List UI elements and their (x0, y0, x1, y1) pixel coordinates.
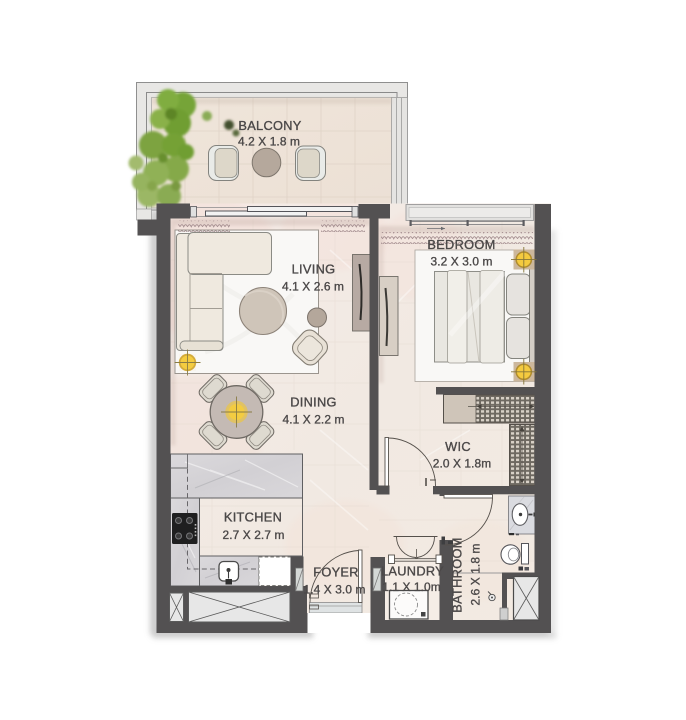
svg-text:1.1 X 1.0m: 1.1 X 1.0m (382, 580, 441, 594)
svg-text:1.4 X 3.0 m: 1.4 X 3.0 m (304, 583, 366, 597)
svg-text:WIC: WIC (445, 439, 471, 454)
svg-text:DINING: DINING (290, 395, 337, 410)
svg-text:BALCONY: BALCONY (238, 118, 301, 133)
svg-text:LAUNDRY: LAUNDRY (381, 564, 444, 579)
svg-text:BATHROOM: BATHROOM (450, 537, 465, 612)
svg-text:4.1 X 2.6 m: 4.1 X 2.6 m (282, 280, 344, 294)
svg-text:2.6 X 1.8 m: 2.6 X 1.8 m (469, 544, 483, 606)
svg-text:LIVING: LIVING (292, 262, 336, 277)
svg-text:2.7 X 2.7 m: 2.7 X 2.7 m (223, 528, 285, 542)
svg-text:BEDROOM: BEDROOM (427, 237, 495, 252)
svg-text:4.2 X 1.8 m: 4.2 X 1.8 m (238, 135, 300, 149)
svg-text:KITCHEN: KITCHEN (224, 510, 282, 525)
svg-text:2.0 X 1.8m: 2.0 X 1.8m (433, 457, 492, 471)
svg-text:3.2 X 3.0 m: 3.2 X 3.0 m (431, 255, 493, 269)
svg-text:FOYER: FOYER (313, 565, 359, 580)
svg-text:4.1 X 2.2 m: 4.1 X 2.2 m (283, 413, 345, 427)
